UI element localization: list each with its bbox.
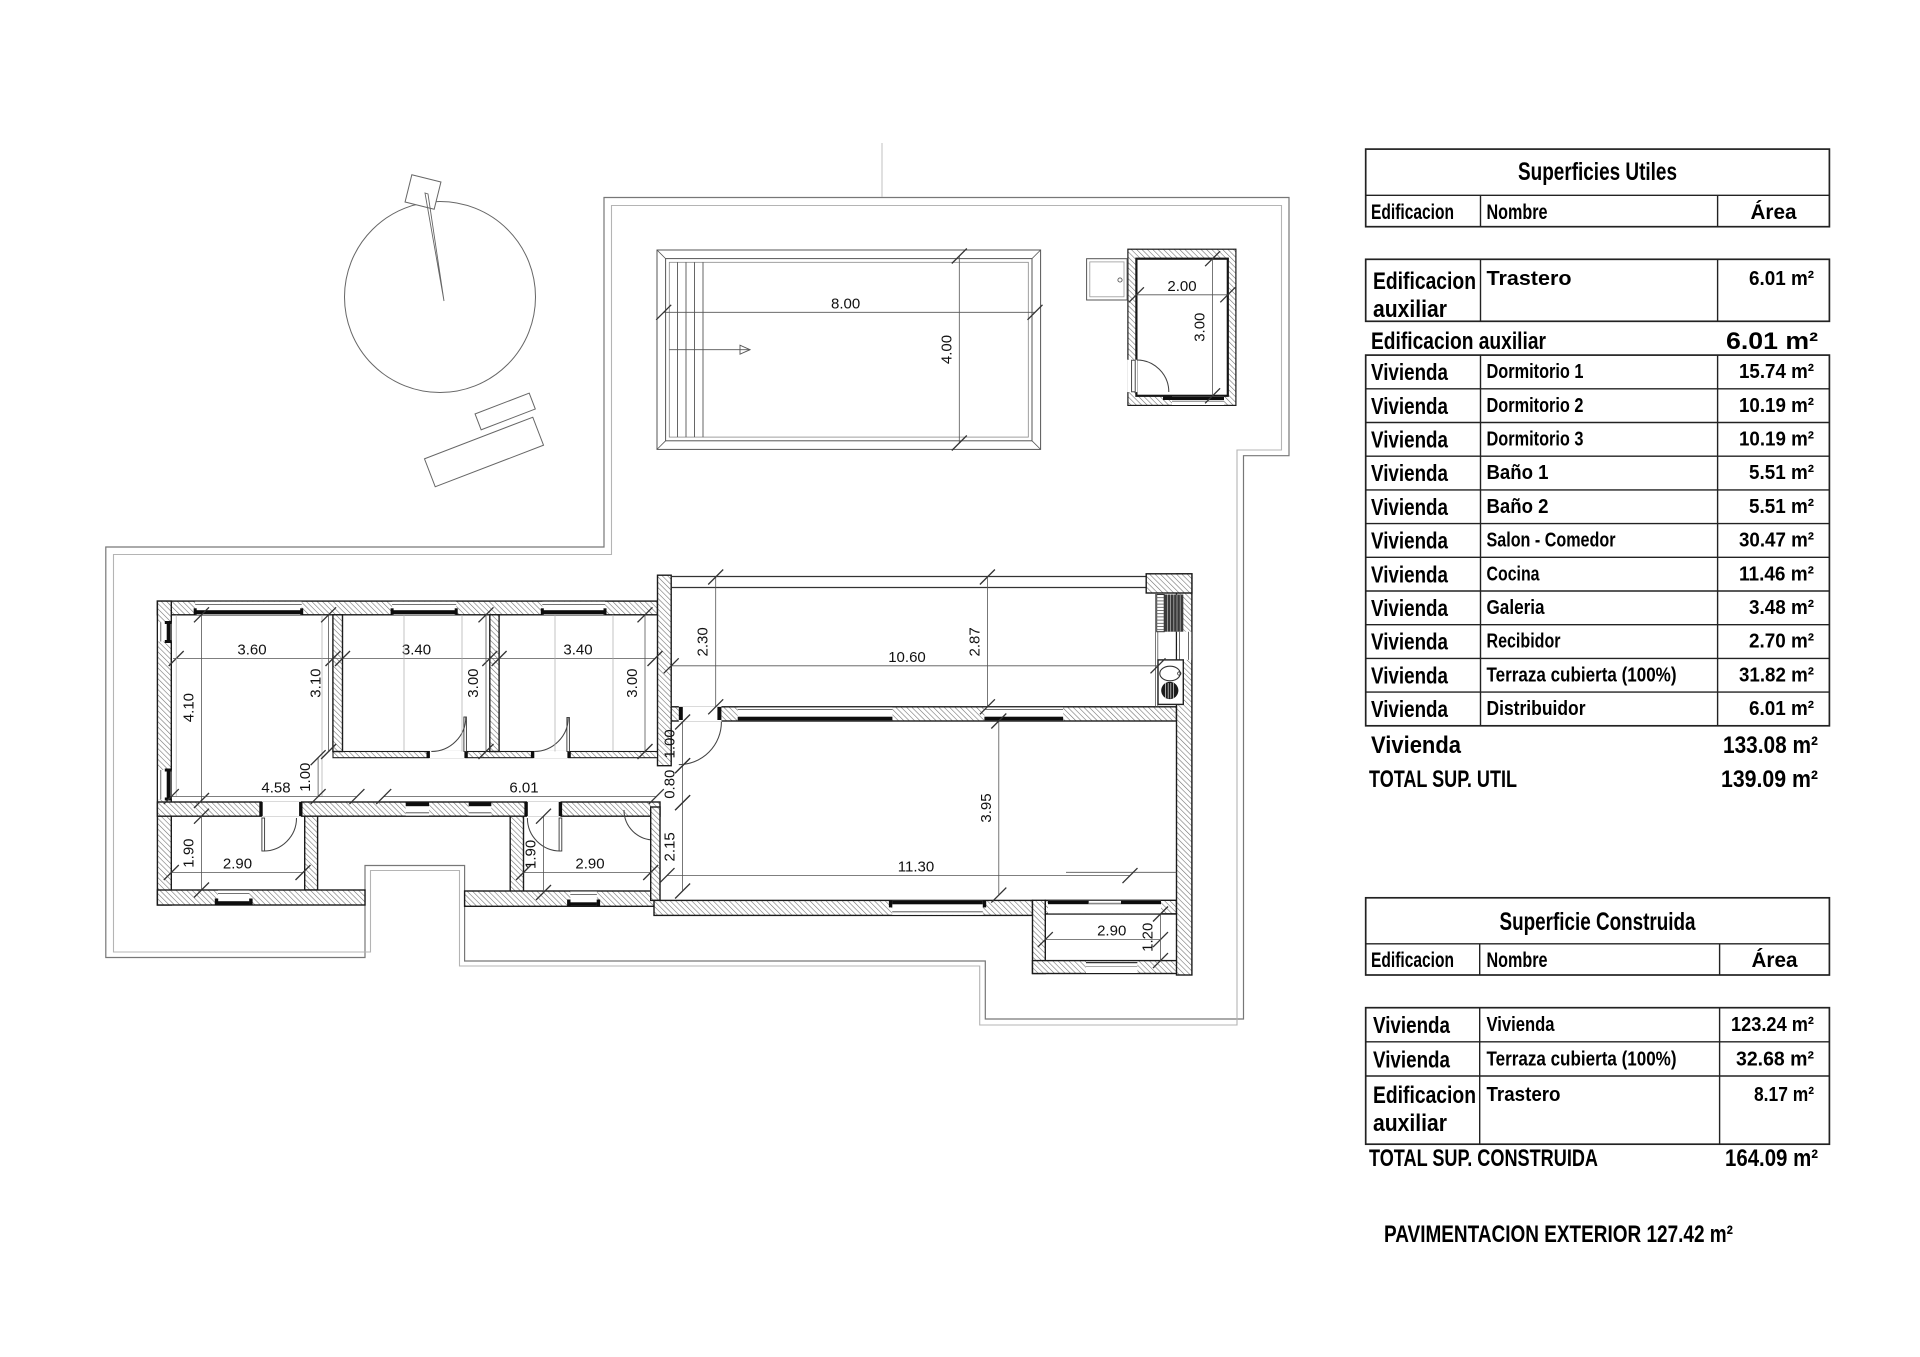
- svg-text:4.10: 4.10: [181, 693, 198, 722]
- svg-text:Baño 2: Baño 2: [1487, 496, 1549, 518]
- svg-text:Dormitorio 1: Dormitorio 1: [1487, 361, 1584, 383]
- svg-text:6.01: 6.01: [509, 780, 538, 797]
- svg-text:11.30: 11.30: [898, 859, 934, 876]
- svg-text:2.30: 2.30: [695, 627, 712, 656]
- svg-text:Vivienda: Vivienda: [1371, 494, 1448, 520]
- svg-text:123.24 m²: 123.24 m²: [1731, 1014, 1814, 1036]
- svg-text:Vivienda: Vivienda: [1371, 528, 1448, 554]
- svg-text:Baño 1: Baño 1: [1487, 462, 1549, 484]
- svg-text:5.51 m²: 5.51 m²: [1749, 462, 1814, 484]
- svg-text:1.20: 1.20: [1140, 923, 1157, 952]
- svg-text:8.00: 8.00: [831, 295, 860, 312]
- svg-text:3.40: 3.40: [563, 642, 592, 659]
- svg-text:3.10: 3.10: [308, 668, 325, 697]
- svg-text:Edificacion: Edificacion: [1371, 949, 1454, 972]
- svg-text:0.80: 0.80: [662, 770, 679, 799]
- svg-text:PAVIMENTACION EXTERIOR 127.42: PAVIMENTACION EXTERIOR 127.42 m²: [1384, 1221, 1733, 1248]
- svg-text:Distribuidor: Distribuidor: [1487, 698, 1586, 720]
- svg-text:164.09 m²: 164.09 m²: [1725, 1145, 1818, 1172]
- svg-text:3.00: 3.00: [624, 668, 641, 697]
- svg-text:Vivienda: Vivienda: [1371, 732, 1462, 759]
- svg-text:2.87: 2.87: [966, 627, 983, 656]
- svg-text:5.51 m²: 5.51 m²: [1749, 496, 1814, 518]
- svg-text:32.68 m²: 32.68 m²: [1736, 1048, 1814, 1070]
- svg-text:2.90: 2.90: [575, 856, 604, 873]
- svg-text:3.40: 3.40: [402, 642, 431, 659]
- svg-text:1.00: 1.00: [662, 729, 679, 758]
- svg-text:Edificacion: Edificacion: [1373, 268, 1476, 295]
- svg-text:1.90: 1.90: [181, 838, 198, 867]
- svg-text:3.95: 3.95: [978, 793, 995, 822]
- svg-text:3.48 m²: 3.48 m²: [1749, 597, 1814, 619]
- svg-text:auxiliar: auxiliar: [1373, 1110, 1447, 1137]
- svg-text:Dormitorio 2: Dormitorio 2: [1487, 395, 1584, 417]
- svg-text:Terraza cubierta (100%): Terraza cubierta (100%): [1487, 664, 1677, 686]
- svg-text:Vivienda: Vivienda: [1373, 1046, 1450, 1072]
- svg-text:6.01 m²: 6.01 m²: [1749, 698, 1814, 720]
- svg-text:Vivienda: Vivienda: [1371, 696, 1448, 722]
- svg-text:2.90: 2.90: [1097, 923, 1126, 940]
- svg-text:2.15: 2.15: [662, 832, 679, 861]
- svg-text:3.00: 3.00: [465, 668, 482, 697]
- svg-text:Galeria: Galeria: [1487, 597, 1546, 619]
- svg-text:Edificacion: Edificacion: [1371, 201, 1454, 224]
- svg-text:30.47 m²: 30.47 m²: [1739, 530, 1814, 552]
- svg-text:Área: Área: [1751, 201, 1797, 224]
- svg-text:8.17 m²: 8.17 m²: [1754, 1084, 1814, 1106]
- svg-text:Dormitorio 3: Dormitorio 3: [1487, 429, 1584, 451]
- svg-text:2.90: 2.90: [223, 856, 252, 873]
- svg-text:Superficies Utiles: Superficies Utiles: [1518, 158, 1677, 186]
- svg-text:Vivienda: Vivienda: [1371, 460, 1448, 486]
- svg-text:3.00: 3.00: [1192, 313, 1209, 342]
- svg-text:Edificacion auxiliar: Edificacion auxiliar: [1371, 328, 1546, 355]
- svg-text:6.01 m²: 6.01 m²: [1726, 328, 1818, 355]
- svg-text:2.70 m²: 2.70 m²: [1749, 631, 1814, 653]
- svg-text:Terraza cubierta (100%): Terraza cubierta (100%): [1487, 1048, 1677, 1070]
- svg-text:Superficie Construida: Superficie Construida: [1500, 908, 1697, 936]
- svg-text:10.60: 10.60: [888, 649, 926, 666]
- svg-text:Vivienda: Vivienda: [1371, 662, 1448, 688]
- svg-text:Área: Área: [1752, 949, 1798, 972]
- svg-text:10.19 m²: 10.19 m²: [1739, 395, 1814, 417]
- svg-text:Nombre: Nombre: [1487, 949, 1548, 972]
- svg-text:1.90: 1.90: [523, 840, 540, 869]
- svg-text:TOTAL SUP. CONSTRUIDA: TOTAL SUP. CONSTRUIDA: [1369, 1145, 1598, 1172]
- svg-text:Cocina: Cocina: [1487, 563, 1541, 585]
- svg-text:1.00: 1.00: [297, 763, 314, 792]
- svg-text:Trastero: Trastero: [1487, 268, 1572, 290]
- svg-text:133.08 m²: 133.08 m²: [1723, 732, 1818, 759]
- svg-text:Vivienda: Vivienda: [1371, 393, 1448, 419]
- svg-text:6.01 m²: 6.01 m²: [1749, 268, 1814, 290]
- svg-text:Salon - Comedor: Salon - Comedor: [1487, 530, 1616, 552]
- svg-text:Vivienda: Vivienda: [1373, 1012, 1450, 1038]
- svg-text:4.58: 4.58: [261, 780, 290, 797]
- svg-text:Recibidor: Recibidor: [1487, 631, 1561, 653]
- svg-text:31.82 m²: 31.82 m²: [1739, 664, 1814, 686]
- svg-text:15.74 m²: 15.74 m²: [1739, 361, 1814, 383]
- svg-text:Vivienda: Vivienda: [1487, 1014, 1556, 1036]
- svg-text:Vivienda: Vivienda: [1371, 427, 1448, 453]
- svg-text:11.46 m²: 11.46 m²: [1739, 563, 1814, 585]
- svg-text:Vivienda: Vivienda: [1371, 595, 1448, 621]
- svg-text:10.19 m²: 10.19 m²: [1739, 429, 1814, 451]
- svg-text:139.09 m²: 139.09 m²: [1721, 766, 1818, 793]
- svg-text:Nombre: Nombre: [1487, 201, 1548, 224]
- svg-text:auxiliar: auxiliar: [1373, 296, 1447, 323]
- svg-text:Vivienda: Vivienda: [1371, 561, 1448, 587]
- svg-text:Edificacion: Edificacion: [1373, 1082, 1476, 1109]
- svg-text:Trastero: Trastero: [1487, 1084, 1561, 1106]
- svg-text:Vivienda: Vivienda: [1371, 629, 1448, 655]
- svg-text:TOTAL SUP. UTIL: TOTAL SUP. UTIL: [1369, 766, 1517, 793]
- svg-text:4.00: 4.00: [938, 335, 955, 364]
- svg-text:2.00: 2.00: [1167, 278, 1196, 295]
- svg-text:3.60: 3.60: [237, 642, 266, 659]
- svg-text:Vivienda: Vivienda: [1371, 359, 1448, 385]
